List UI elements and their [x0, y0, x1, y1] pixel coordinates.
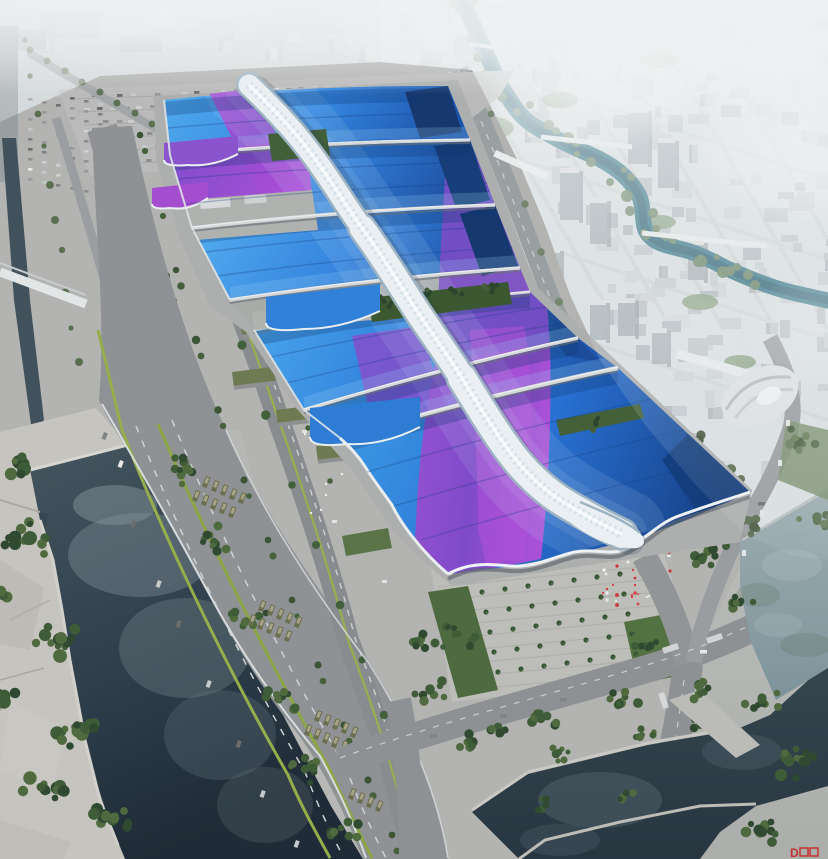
svg-text:D: D	[790, 846, 799, 859]
